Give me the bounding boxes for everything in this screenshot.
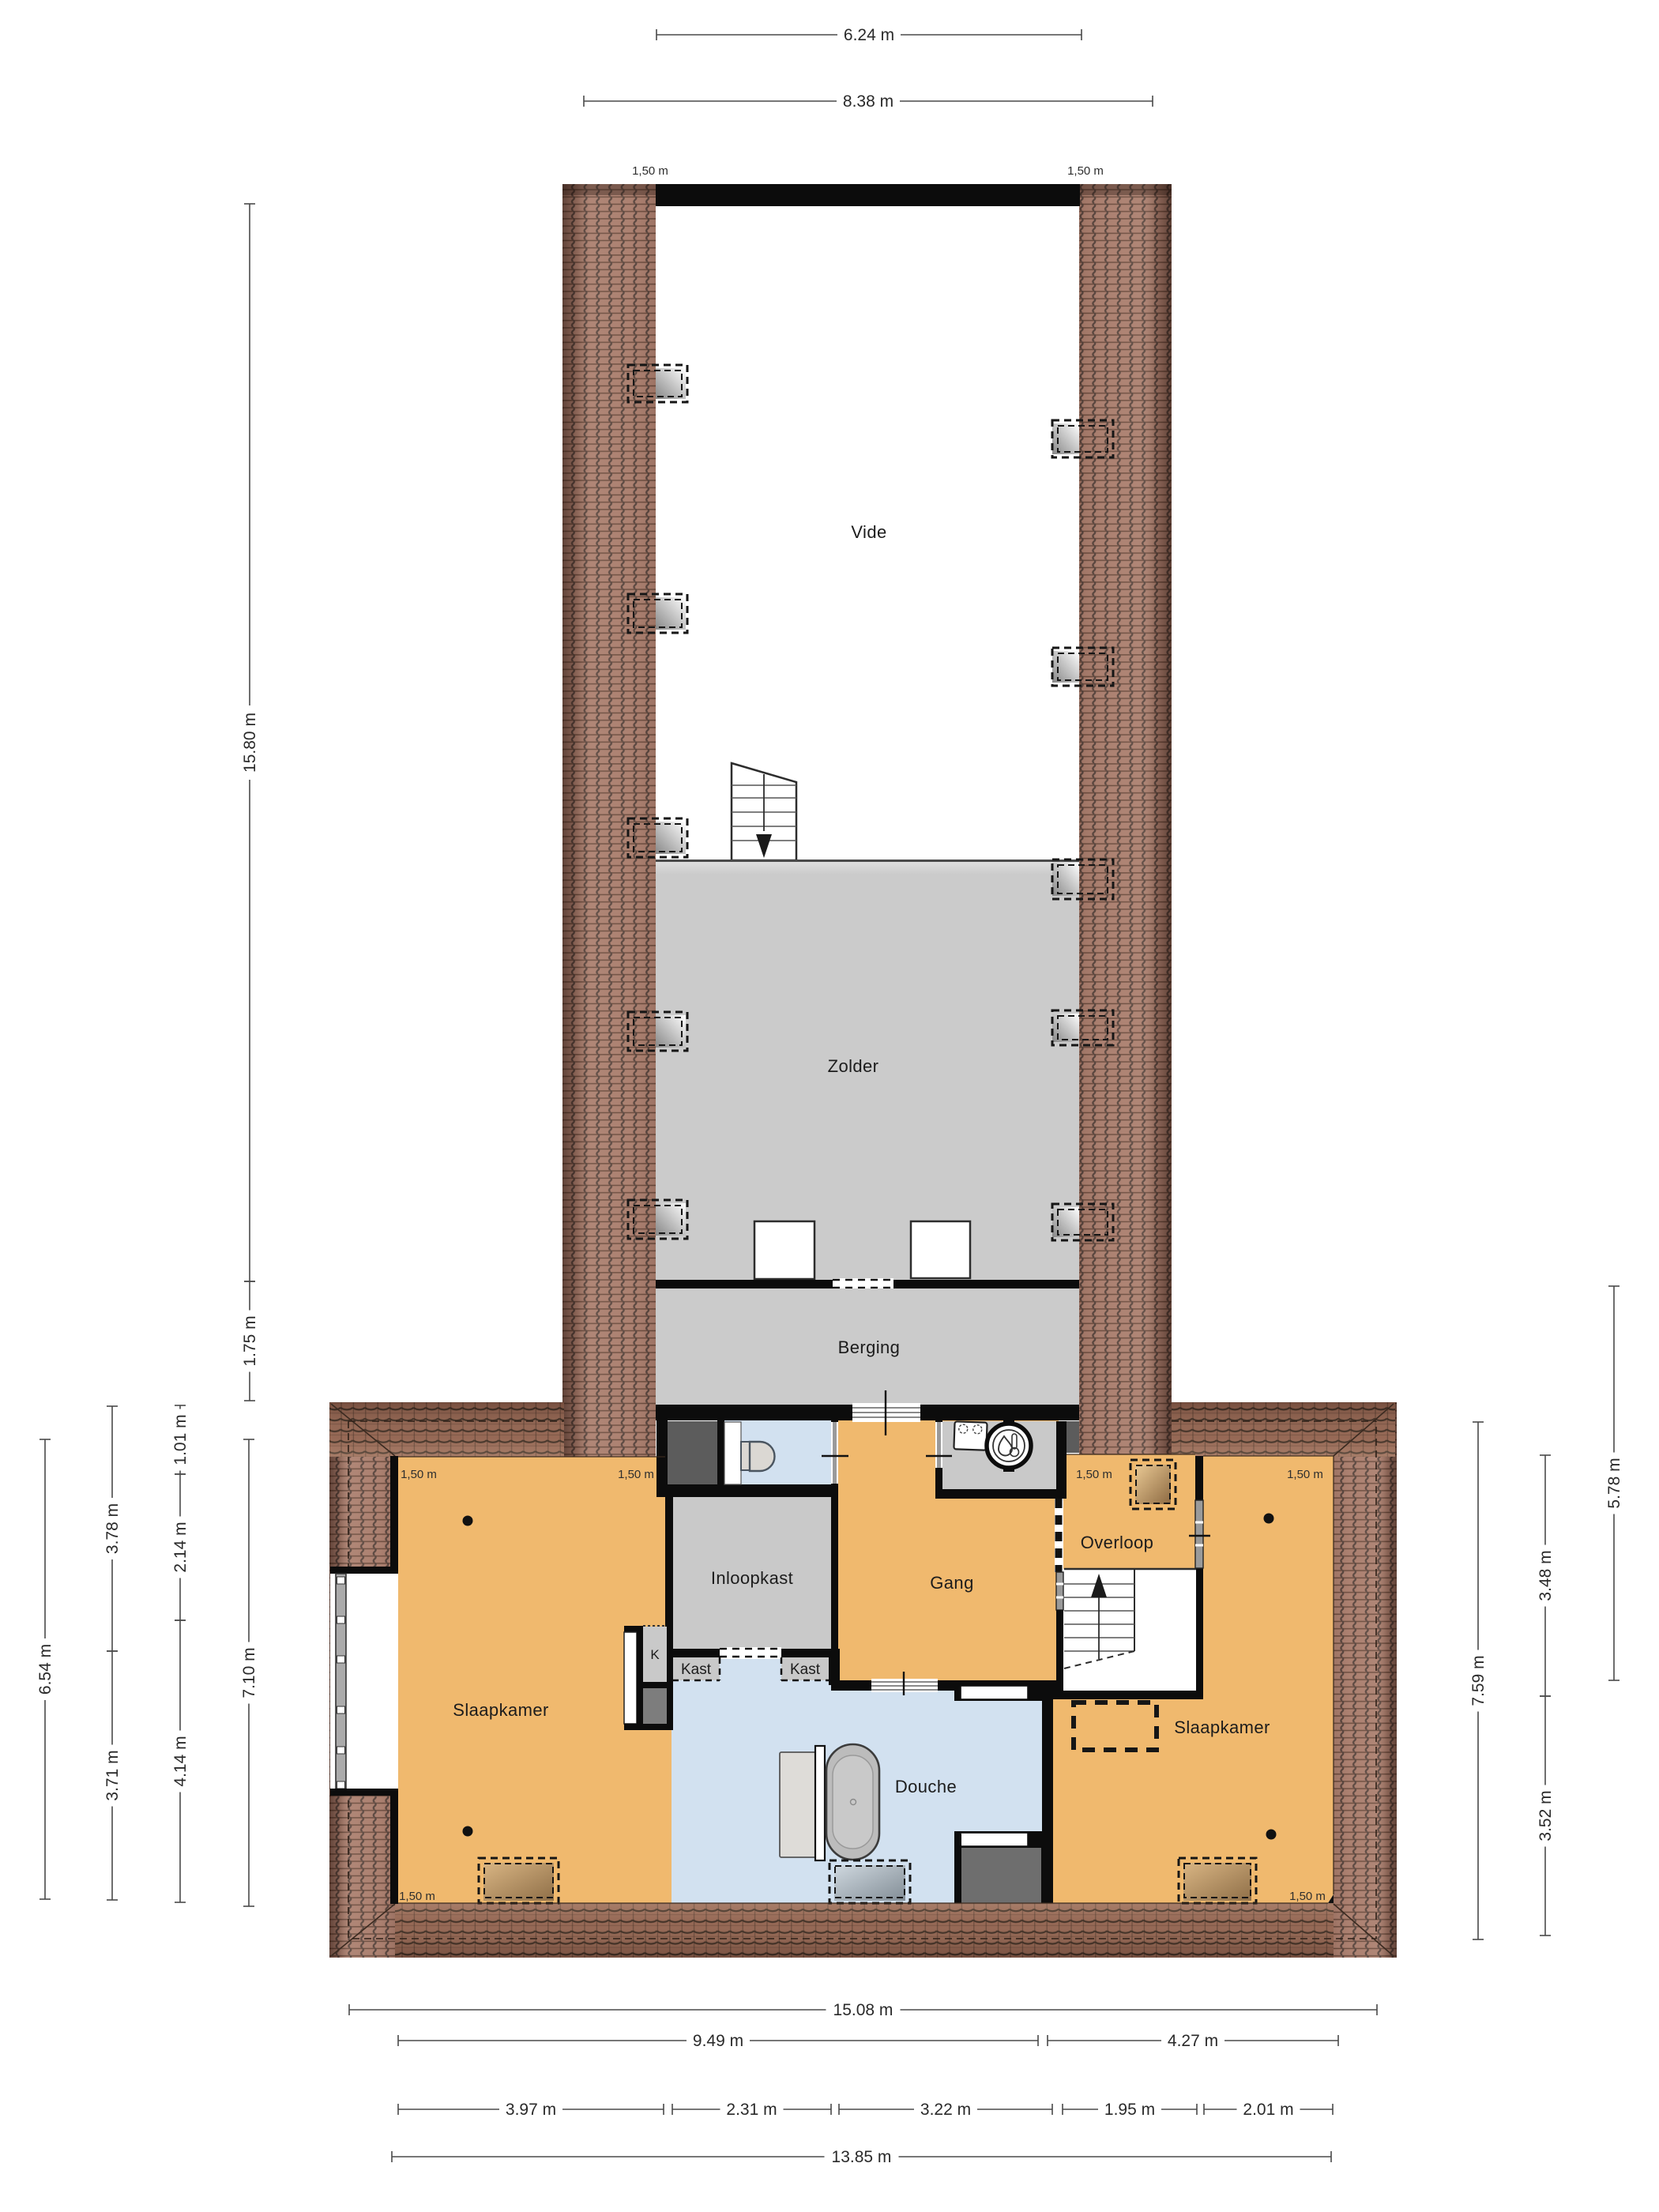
svg-text:3.48 m: 3.48 m (1537, 1550, 1555, 1601)
svg-text:1,50 m: 1,50 m (1287, 1468, 1323, 1481)
svg-text:3.78 m: 3.78 m (103, 1503, 122, 1554)
svg-text:1.95 m: 1.95 m (1104, 2101, 1155, 2119)
svg-text:Berging: Berging (838, 1337, 901, 1357)
svg-text:Vide: Vide (851, 522, 886, 542)
svg-text:4.27 m: 4.27 m (1168, 2032, 1218, 2050)
svg-text:Overloop: Overloop (1081, 1533, 1153, 1552)
svg-text:1,50 m: 1,50 m (1067, 164, 1104, 178)
svg-text:5.78 m: 5.78 m (1605, 1458, 1623, 1508)
svg-text:1.75 m: 1.75 m (241, 1315, 259, 1366)
svg-text:7.10 m: 7.10 m (240, 1647, 258, 1698)
svg-text:K: K (650, 1647, 660, 1662)
svg-text:Slaapkamer: Slaapkamer (1174, 1717, 1270, 1737)
svg-text:3.22 m: 3.22 m (920, 2101, 971, 2119)
svg-text:6.54 m: 6.54 m (36, 1644, 55, 1695)
svg-text:15.80 m: 15.80 m (241, 713, 259, 773)
svg-text:Slaapkamer: Slaapkamer (453, 1700, 548, 1720)
svg-text:2.01 m: 2.01 m (1243, 2101, 1293, 2119)
svg-text:8.38 m: 8.38 m (843, 92, 893, 111)
svg-text:15.08 m: 15.08 m (833, 2001, 893, 2019)
svg-text:2.31 m: 2.31 m (726, 2101, 777, 2119)
svg-text:1.01 m: 1.01 m (171, 1414, 190, 1465)
svg-text:1,50 m: 1,50 m (618, 1468, 654, 1481)
svg-text:1,50 m: 1,50 m (632, 164, 668, 178)
svg-text:13.85 m: 13.85 m (832, 2148, 892, 2166)
svg-text:Gang: Gang (930, 1573, 973, 1593)
svg-text:Kast: Kast (681, 1661, 712, 1678)
svg-text:Zolder: Zolder (828, 1056, 879, 1076)
svg-text:Kast: Kast (790, 1661, 821, 1678)
svg-text:1,50 m: 1,50 m (1076, 1468, 1112, 1481)
svg-text:9.49 m: 9.49 m (693, 2032, 743, 2050)
svg-text:1,50 m: 1,50 m (1289, 1890, 1326, 1903)
svg-text:4.14 m: 4.14 m (171, 1736, 190, 1786)
svg-text:7.59 m: 7.59 m (1469, 1655, 1488, 1706)
svg-text:6.24 m: 6.24 m (844, 26, 894, 44)
svg-text:3.71 m: 3.71 m (103, 1750, 122, 1800)
svg-text:3.52 m: 3.52 m (1537, 1790, 1555, 1841)
svg-text:2.14 m: 2.14 m (171, 1522, 190, 1572)
svg-text:Douche: Douche (895, 1777, 957, 1796)
svg-text:1,50 m: 1,50 m (399, 1890, 435, 1903)
svg-text:1,50 m: 1,50 m (401, 1468, 437, 1481)
svg-text:3.97 m: 3.97 m (506, 2101, 556, 2119)
svg-text:Inloopkast: Inloopkast (711, 1568, 793, 1588)
